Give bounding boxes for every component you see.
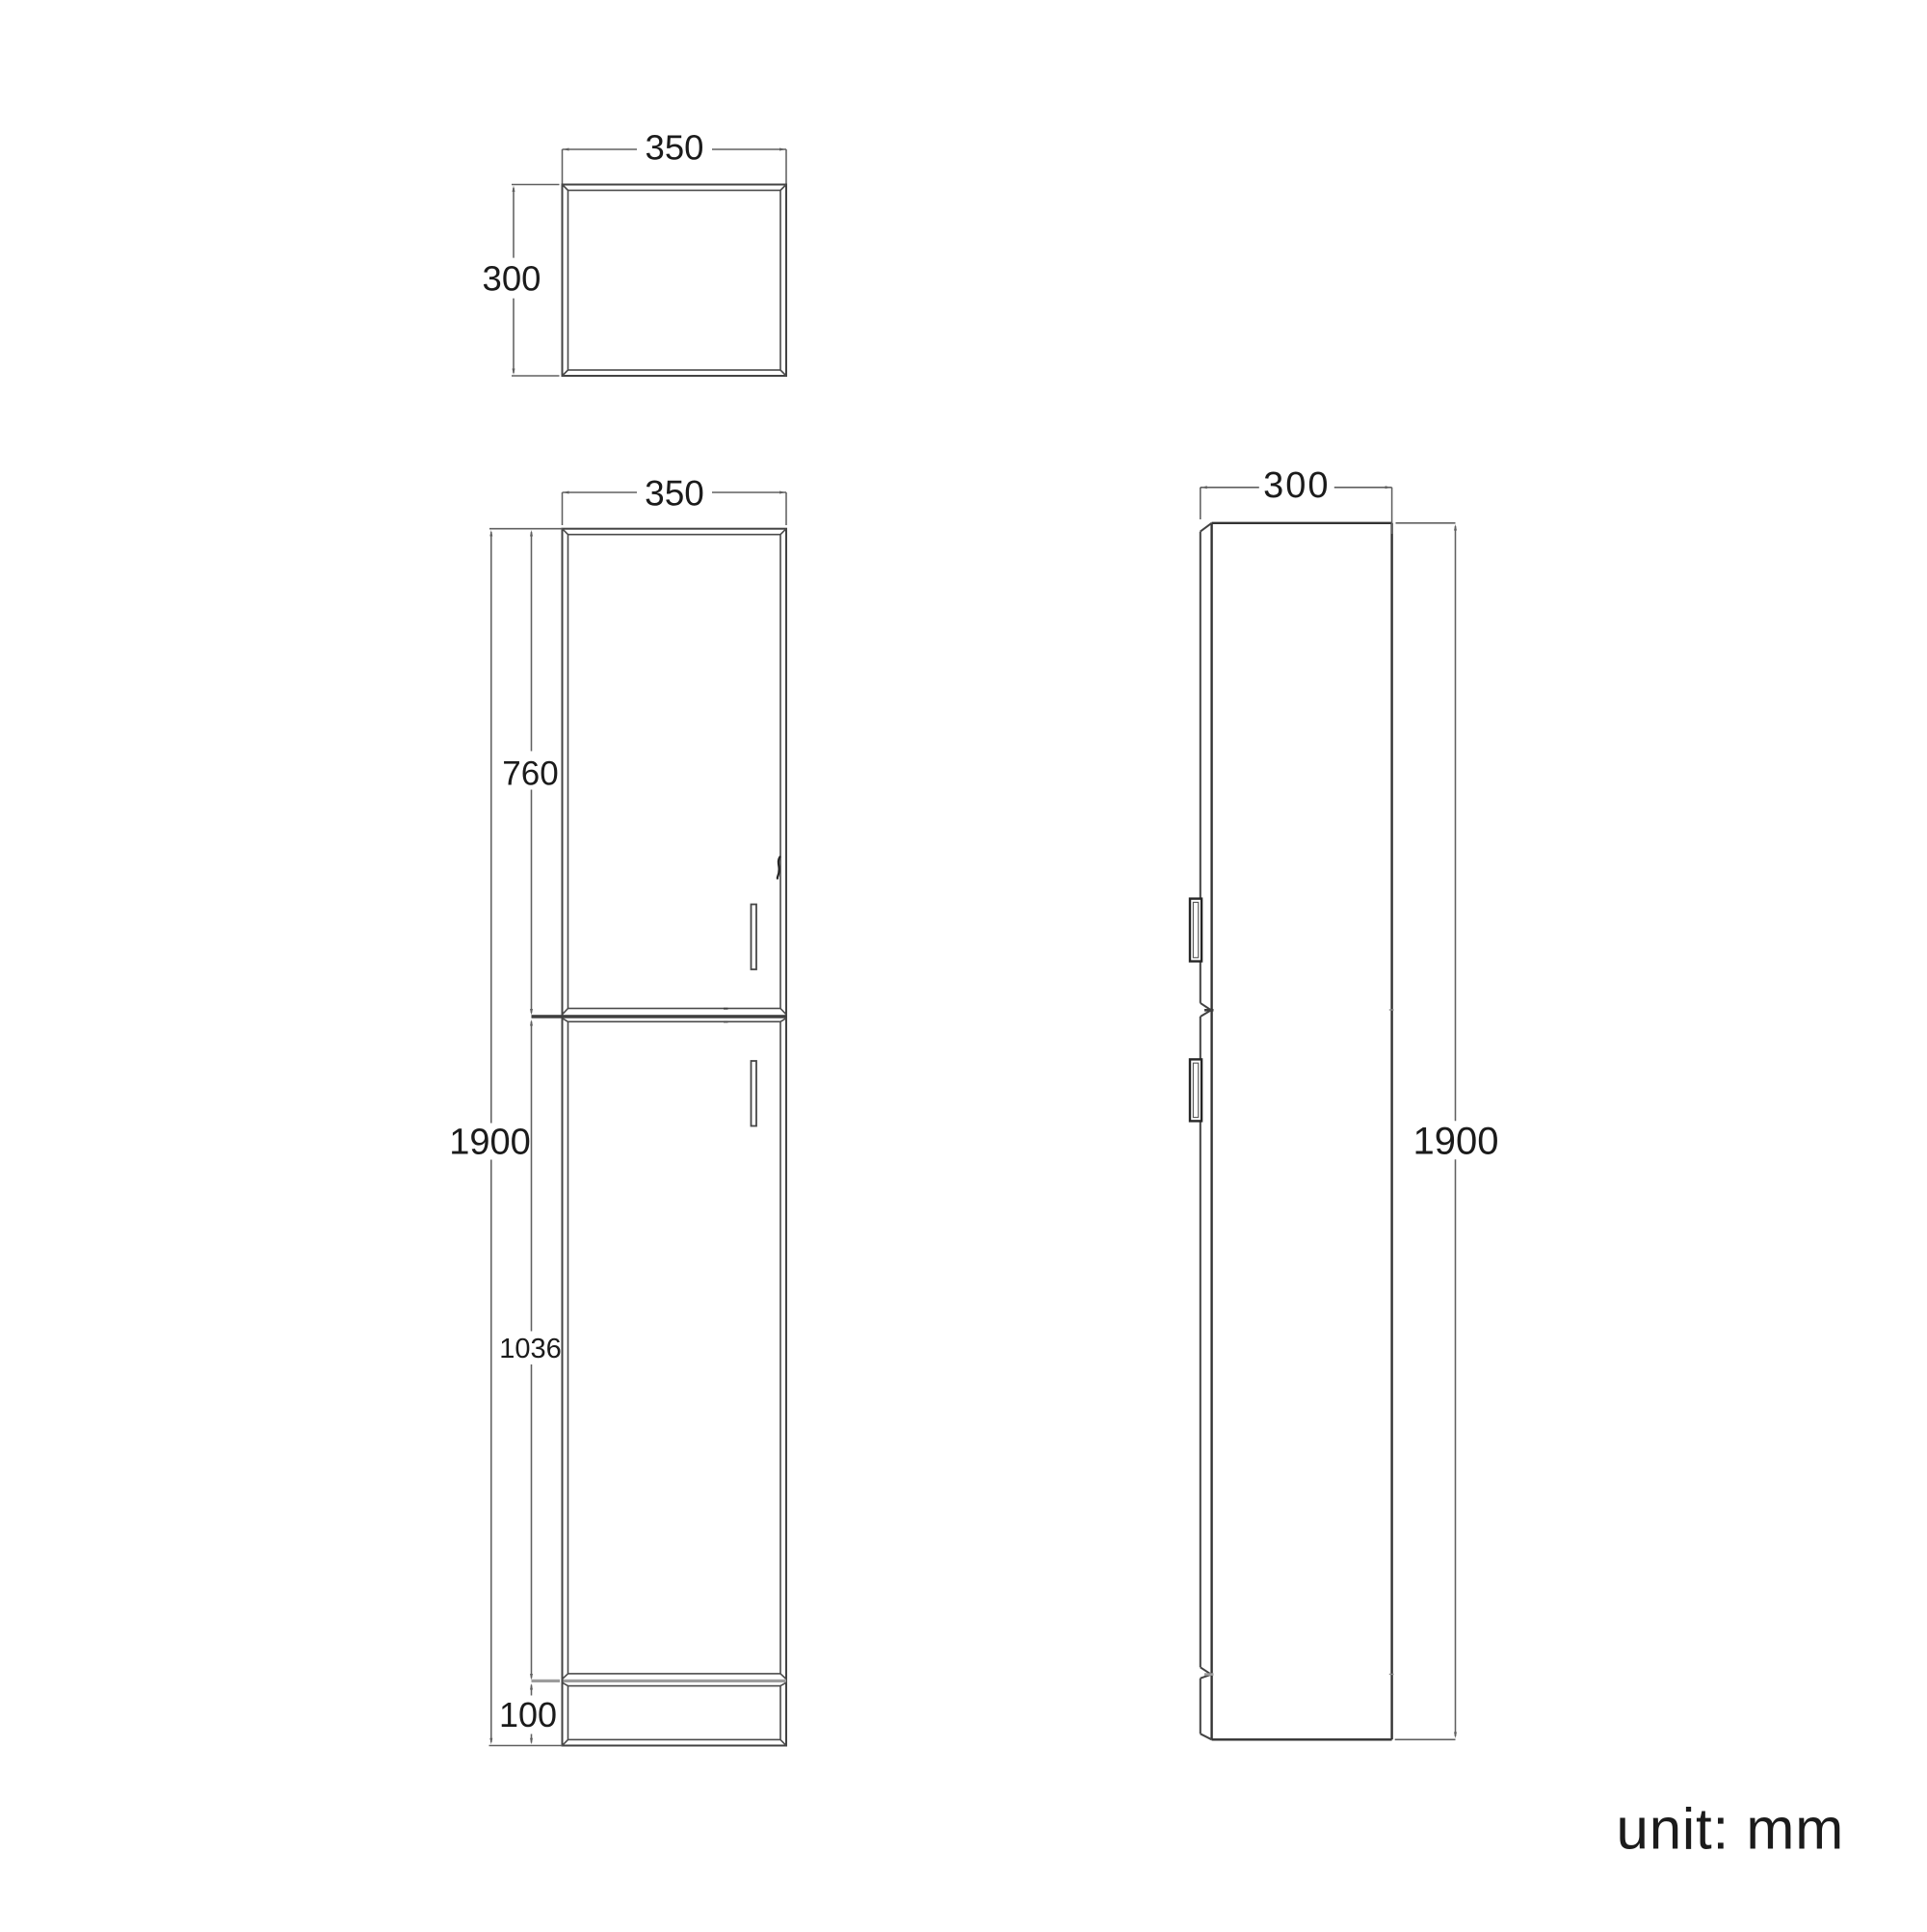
svg-text:1036: 1036 [499,1334,562,1364]
svg-text:760: 760 [502,755,558,793]
svg-text:350: 350 [645,474,704,514]
svg-text:350: 350 [646,128,704,168]
svg-text:300: 300 [1263,465,1330,506]
svg-text:300: 300 [483,259,541,299]
svg-text:100: 100 [499,1695,557,1734]
svg-text:1900: 1900 [449,1123,531,1163]
svg-text:unit: mm: unit: mm [1617,1797,1844,1862]
svg-text:1900: 1900 [1413,1121,1499,1163]
